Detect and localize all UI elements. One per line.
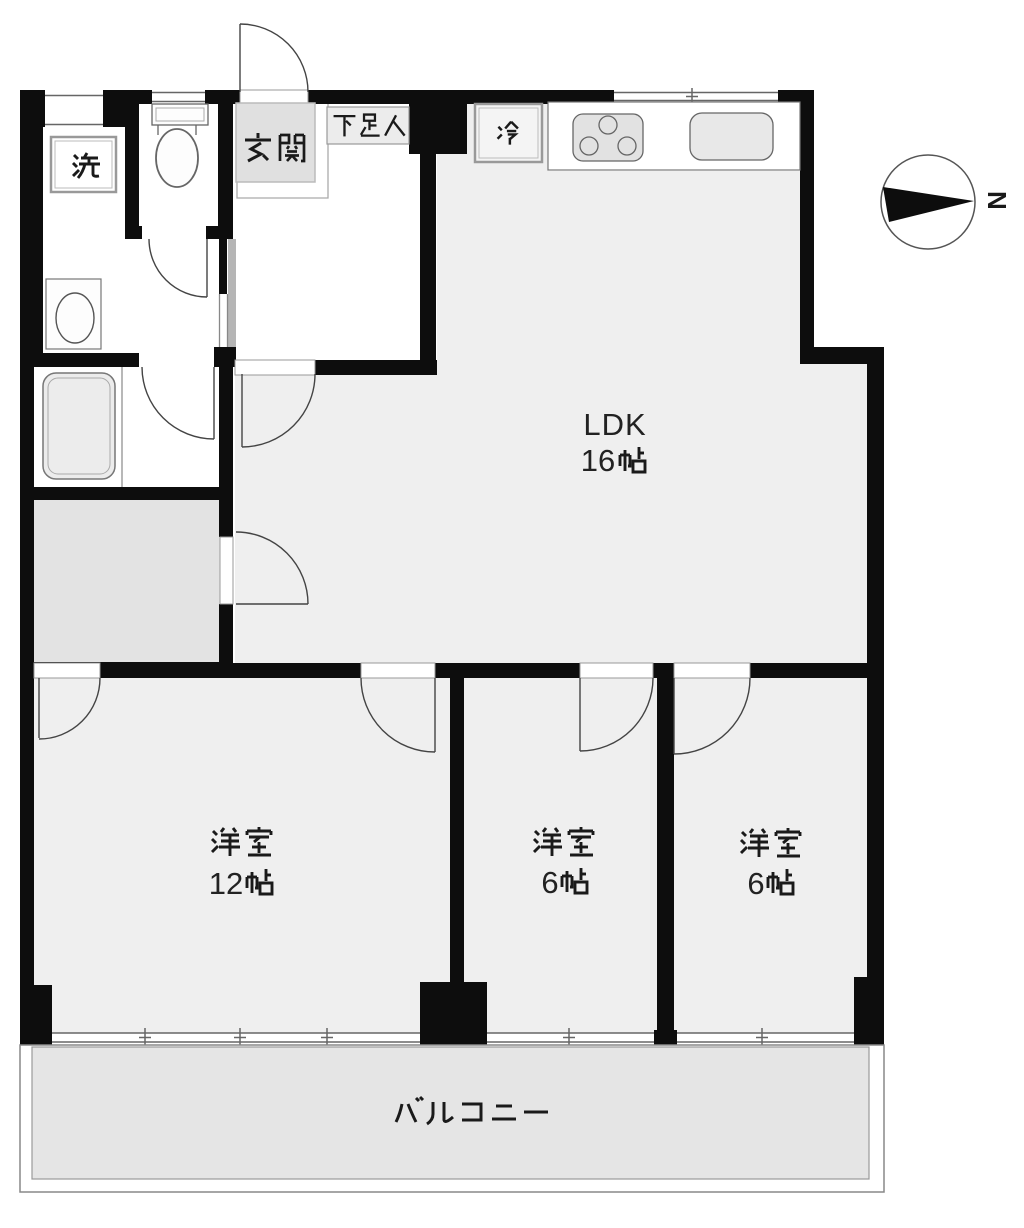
- svg-text:6: 6: [747, 866, 764, 901]
- svg-text:LDK: LDK: [583, 407, 646, 442]
- svg-text:12: 12: [209, 866, 243, 901]
- svg-text:6: 6: [541, 865, 558, 900]
- svg-text:N: N: [982, 191, 1012, 210]
- svg-text:16: 16: [581, 443, 615, 478]
